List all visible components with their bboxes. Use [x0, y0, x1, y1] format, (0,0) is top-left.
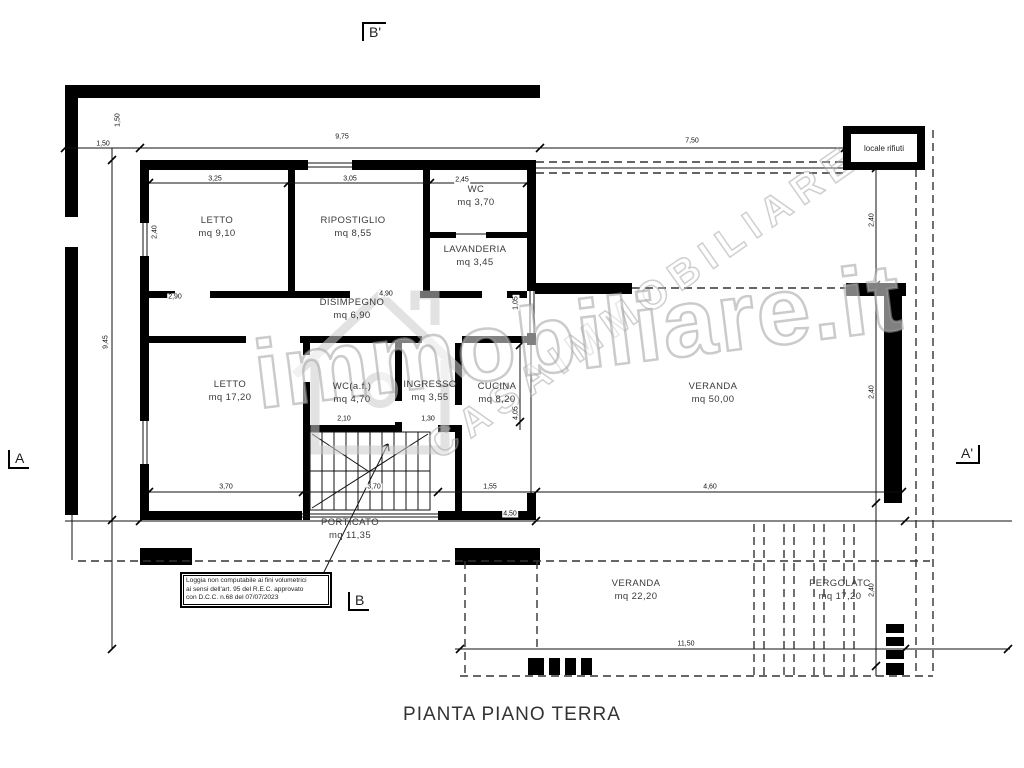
dimension-label: 2,40: [869, 582, 876, 598]
room-label-ripostiglio: RIPOSTIGLIOmq 8,55: [320, 215, 385, 241]
dimension-label: 2,10: [336, 416, 352, 423]
dimension-label: 3,25: [207, 176, 223, 183]
dimension-label: 9,45: [103, 334, 110, 350]
floorplan-page: CASAIMMOBILIARE immobiliare.it locale ri…: [0, 0, 1024, 768]
note-line: con D.C.C. n.68 del 07/07/2023: [186, 594, 326, 603]
dimension-label: 2,40: [152, 224, 159, 240]
note-line: Loggia non computabile ai fini volumetri…: [186, 577, 326, 586]
room-label-veranda: VERANDAmq 22,20: [612, 578, 661, 604]
dimension-label: 3,05: [342, 176, 358, 183]
dimension-label: 4,60: [702, 484, 718, 491]
section-marker-a-right: A': [956, 445, 980, 464]
dimension-label: 1,30: [420, 416, 436, 423]
room-label-ingresso: INGRESSOmq 3,55: [403, 379, 456, 405]
room-label-letto: LETTOmq 9,10: [198, 215, 235, 241]
locale-rifiuti-label: locale rifiuti: [851, 134, 917, 162]
locale-rifiuti-box: locale rifiuti: [843, 126, 925, 170]
dimension-label: 1,05: [513, 295, 520, 311]
dimension-label: 2,40: [869, 212, 876, 228]
dimension-label: 4,05: [513, 405, 520, 421]
loggia-note-box: Loggia non computabile ai fini volumetri…: [180, 572, 332, 608]
room-label-letto: LETTOmq 17,20: [209, 379, 252, 405]
section-marker-a-left: A: [8, 450, 29, 469]
dimension-label: 2,45: [454, 177, 470, 184]
dimension-label: 3,70: [218, 484, 234, 491]
dimension-label: 9,75: [334, 134, 350, 141]
section-marker-b-top: B': [362, 22, 386, 41]
dimension-label: 2,90: [167, 294, 183, 301]
dimension-label: 11,50: [677, 641, 696, 648]
plan-title: PIANTA PIANO TERRA: [0, 704, 1024, 726]
room-label-cucina: CUCINAmq 8,20: [478, 381, 517, 407]
staircase: [310, 432, 430, 510]
dimension-label: 4,90: [378, 291, 394, 298]
dimension-label: 2,40: [869, 384, 876, 400]
room-label-disimpegno: DISIMPEGNOmq 6,90: [320, 297, 385, 323]
dimension-label: 1,50: [95, 141, 111, 148]
note-line: ai sensi dell'art. 95 del R.E.C. approva…: [186, 586, 326, 595]
room-label-wc: WCmq 3,70: [457, 184, 494, 210]
dimension-label: 3,70: [366, 484, 382, 491]
dimension-label: 7,50: [684, 138, 700, 145]
dimension-label: 4,50: [502, 511, 518, 518]
room-label-veranda: VERANDAmq 50,00: [689, 381, 738, 407]
dimension-label: 1,50: [115, 112, 122, 128]
section-marker-b-bottom: B: [348, 592, 369, 611]
room-label-wc-a-f-: WC(a.f.)mq 4,70: [333, 381, 372, 407]
room-label-porticato: PORTICATOmq 11,35: [321, 517, 379, 543]
room-label-lavanderia: LAVANDERIAmq 3,45: [444, 244, 507, 270]
dimension-label: 1,55: [482, 484, 498, 491]
room-label-pergolato: PERGOLATOmq 17,20: [809, 578, 871, 604]
